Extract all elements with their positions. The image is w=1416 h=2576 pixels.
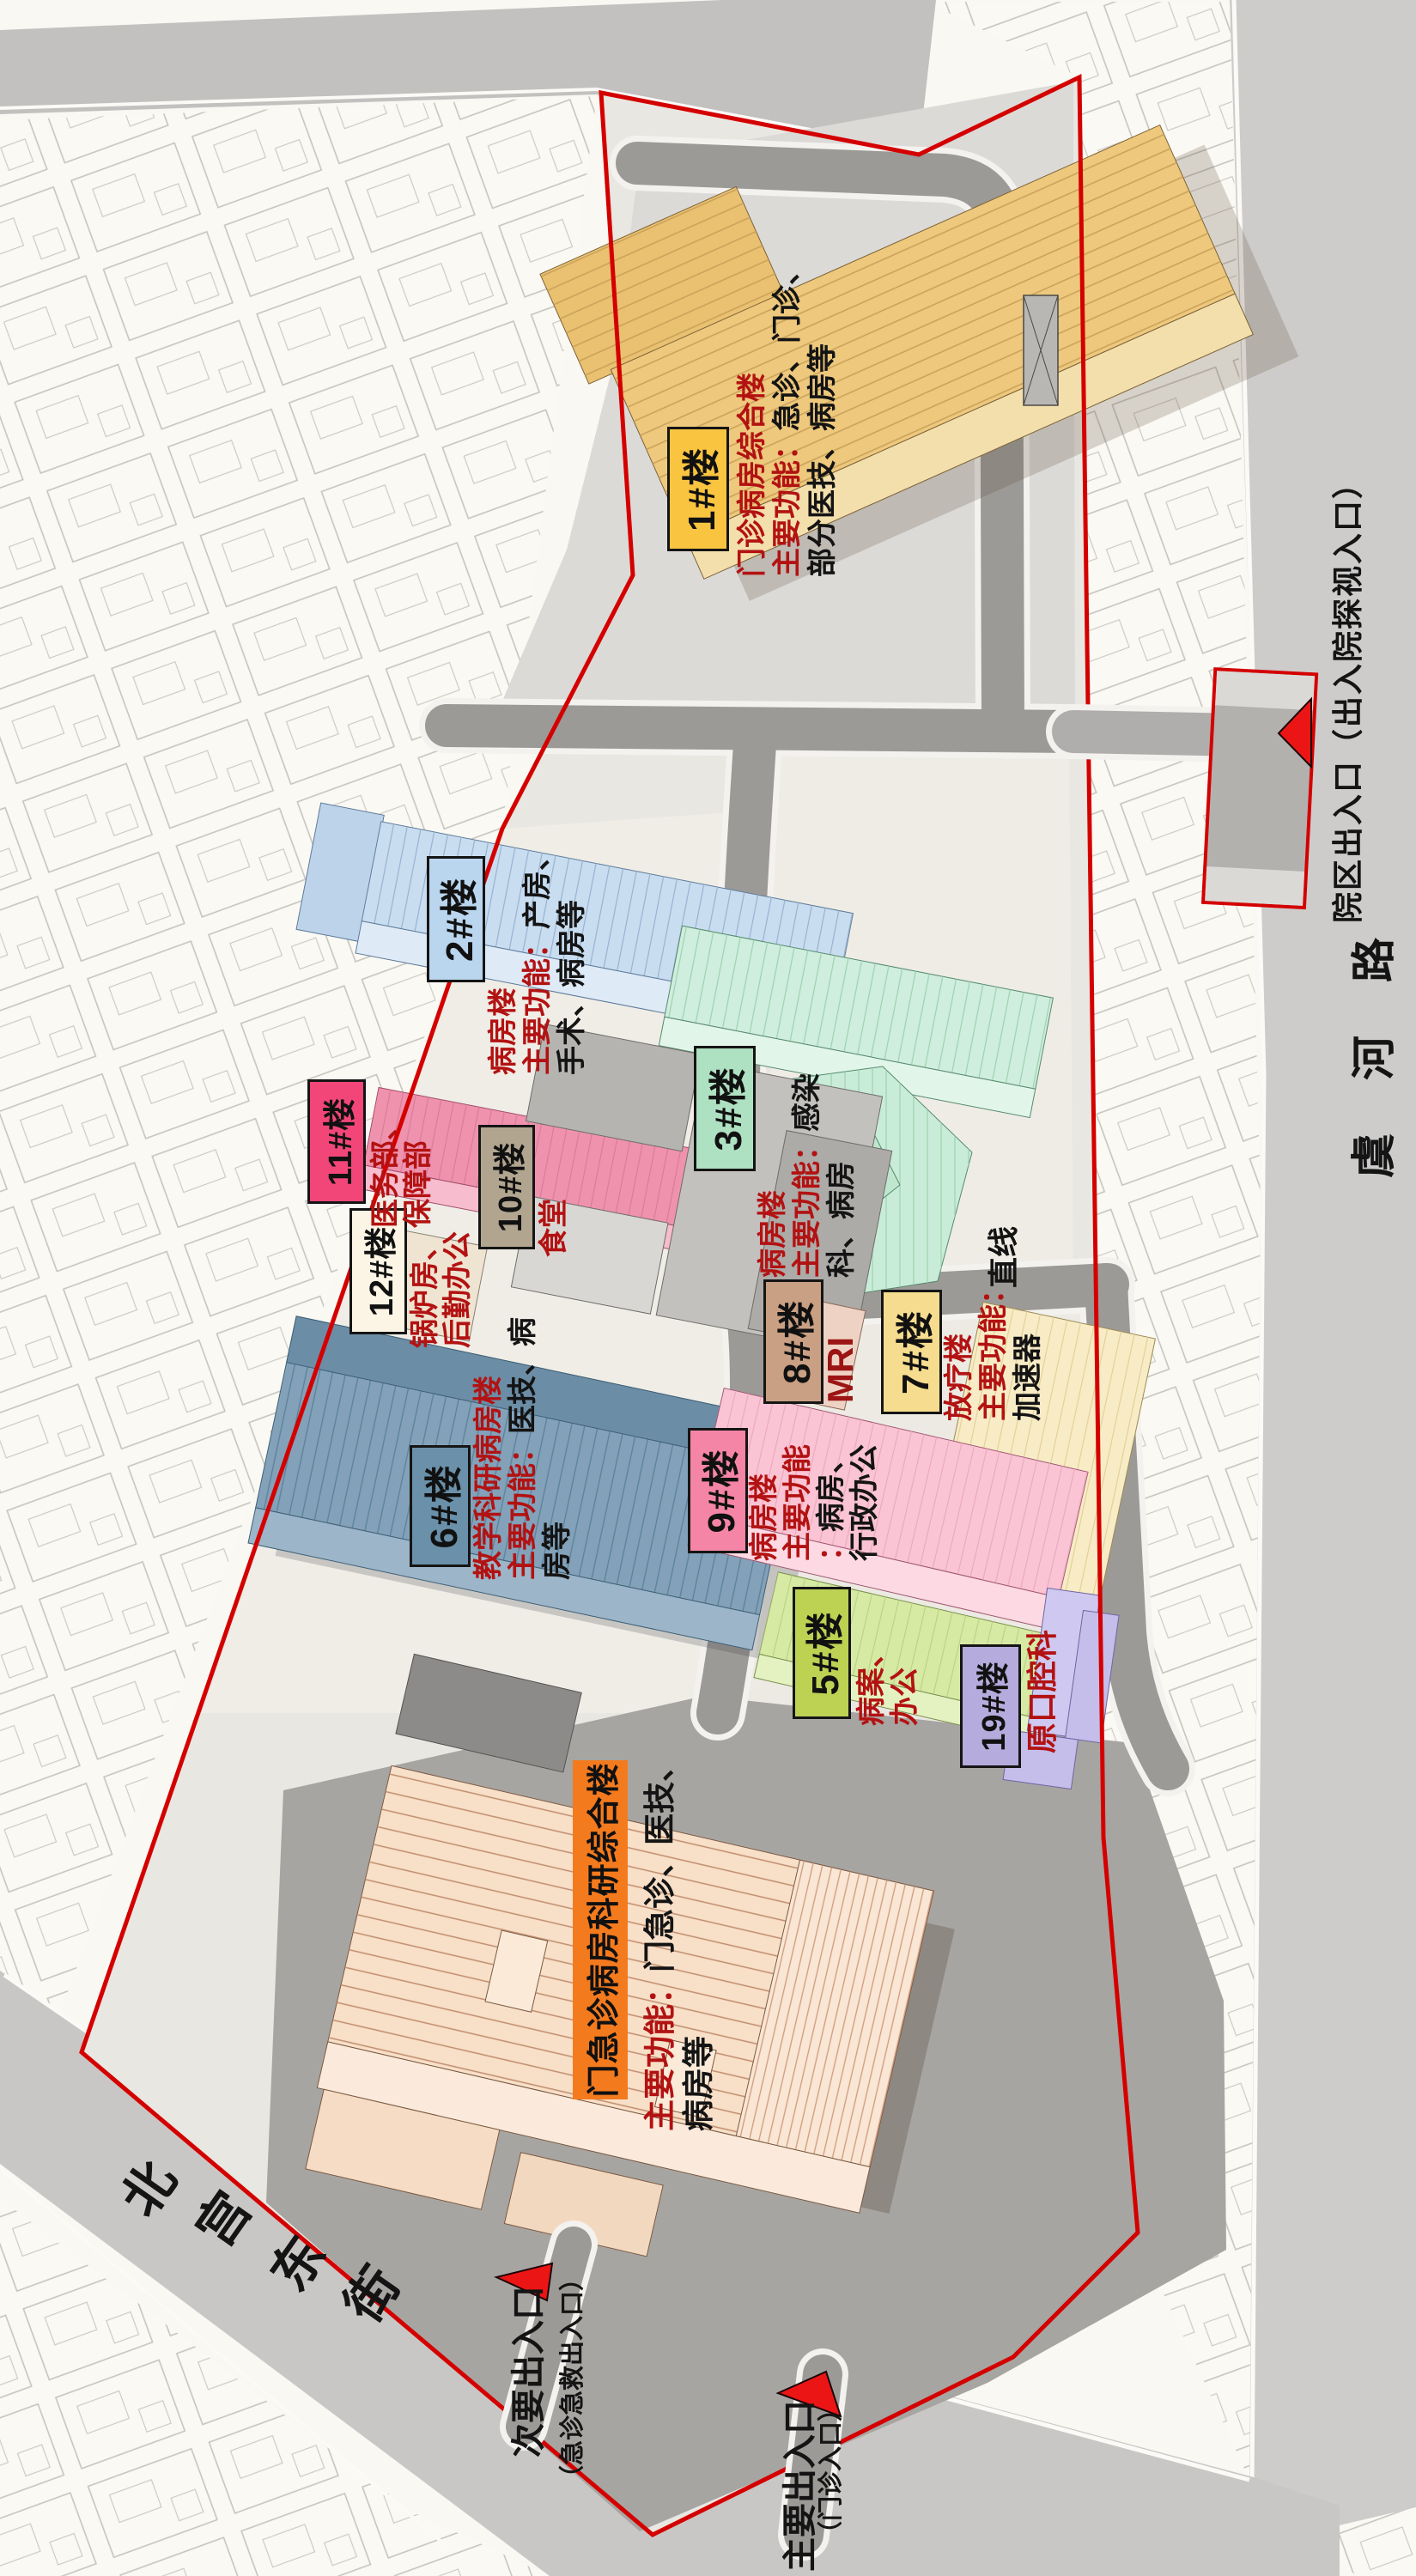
hospital-site-plan: 1#楼 2#楼 3#楼 11#楼 12#楼 10#楼 6#楼 8#楼 7#楼 9… (0, 0, 1416, 2576)
road-note: 直线 (979, 1211, 1024, 1288)
label-box-9: 9#楼 (688, 1428, 748, 1553)
main-complex-title: 门急诊病房科研综合楼 (577, 1763, 624, 2098)
secondary-entrance-label: 次要出入口 (501, 2277, 550, 2458)
label-6: 6#楼 (413, 1464, 468, 1549)
label-box-5: 5#楼 (793, 1587, 851, 1719)
east-entrance-label: 院区出入口（出入院探视入口） (1323, 477, 1368, 923)
label-10: 10#楼 (483, 1142, 531, 1232)
label-box-1: 1#楼 (667, 427, 729, 551)
desc-building-5: 病案、 办公 (855, 1580, 922, 1726)
label-box-7: 7#楼 (881, 1290, 942, 1414)
label-9: 9#楼 (690, 1449, 745, 1534)
desc-building-2: 病房楼 主要功能：产房、 手术、病房等 (486, 714, 589, 1075)
secondary-entrance-sublabel: （急诊急救出入口） (552, 2275, 588, 2490)
desc-building-12: 锅炉房、 后勤办公 (409, 1202, 474, 1348)
label-box-10: 10#楼 (478, 1125, 535, 1249)
desc-building-19: 原口腔科 (1025, 1607, 1060, 1753)
desc-building-9: 病房楼 主要功能 ：病房、 行政办公 (748, 1415, 882, 1561)
desc-building-6: 教学科研病房楼 主要功能：医技、病 房等 (471, 1322, 574, 1580)
label-7: 7#楼 (884, 1309, 939, 1394)
desc-building-1: 门诊病房综合楼 主要功能：急诊、门诊、 部分医技、病房等 (735, 208, 841, 577)
label-11: 11#楼 (313, 1097, 361, 1186)
label-8: 8#楼 (766, 1299, 821, 1384)
desc-main-complex: 主要功能：门急诊、医技、 病房等 (641, 1762, 718, 2131)
label-19: 19#楼 (967, 1661, 1014, 1751)
main-entrance-sublabel: （门诊入口） (811, 2379, 847, 2546)
label-box-8: 8#楼 (763, 1279, 823, 1404)
label-3: 3#楼 (697, 1066, 752, 1151)
north-gray-tower (1024, 295, 1058, 405)
east-gatehouse (1203, 669, 1316, 908)
label-box-3: 3#楼 (694, 1046, 756, 1171)
label-box-11: 11#楼 (307, 1079, 366, 1204)
main-complex-banner: 门急诊病房科研综合楼 (573, 1760, 628, 2099)
label-5: 5#楼 (794, 1611, 849, 1696)
label-1: 1#楼 (671, 447, 726, 532)
label-12: 12#楼 (355, 1226, 402, 1316)
desc-building-8: MRI (820, 1326, 861, 1403)
label-box-19: 19#楼 (960, 1644, 1021, 1768)
desc-building-3: 病房楼 主要功能：感染 科、病房 (756, 969, 859, 1278)
desc-building-10: 食堂 (538, 1180, 570, 1257)
label-2: 2#楼 (428, 877, 483, 962)
east-road-name: 虞河路 (1338, 920, 1402, 1178)
label-box-6: 6#楼 (410, 1445, 471, 1567)
label-box-2: 2#楼 (427, 856, 485, 982)
